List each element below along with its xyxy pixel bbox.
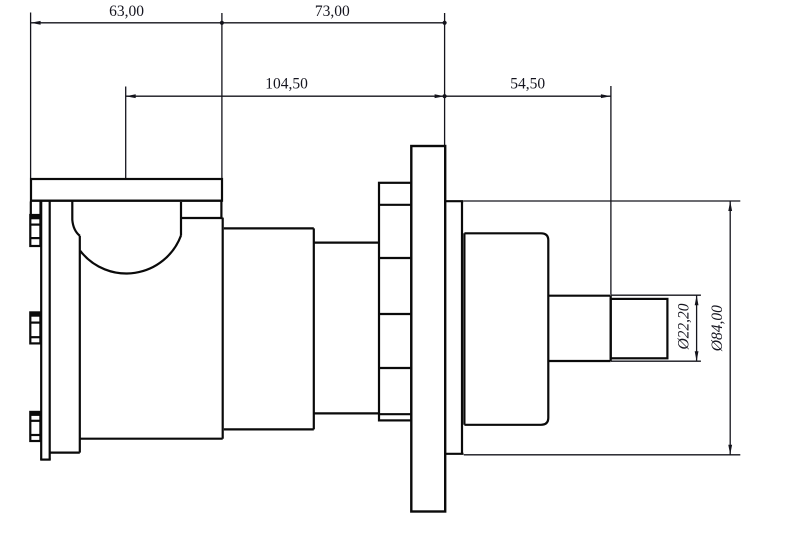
- svg-text:63,00: 63,00: [109, 3, 144, 20]
- svg-text:73,00: 73,00: [315, 3, 350, 20]
- svg-text:Ø22,20: Ø22,20: [676, 303, 693, 350]
- svg-text:104,50: 104,50: [265, 76, 308, 93]
- svg-text:Ø84,00: Ø84,00: [709, 305, 726, 352]
- svg-text:54,50: 54,50: [510, 76, 545, 93]
